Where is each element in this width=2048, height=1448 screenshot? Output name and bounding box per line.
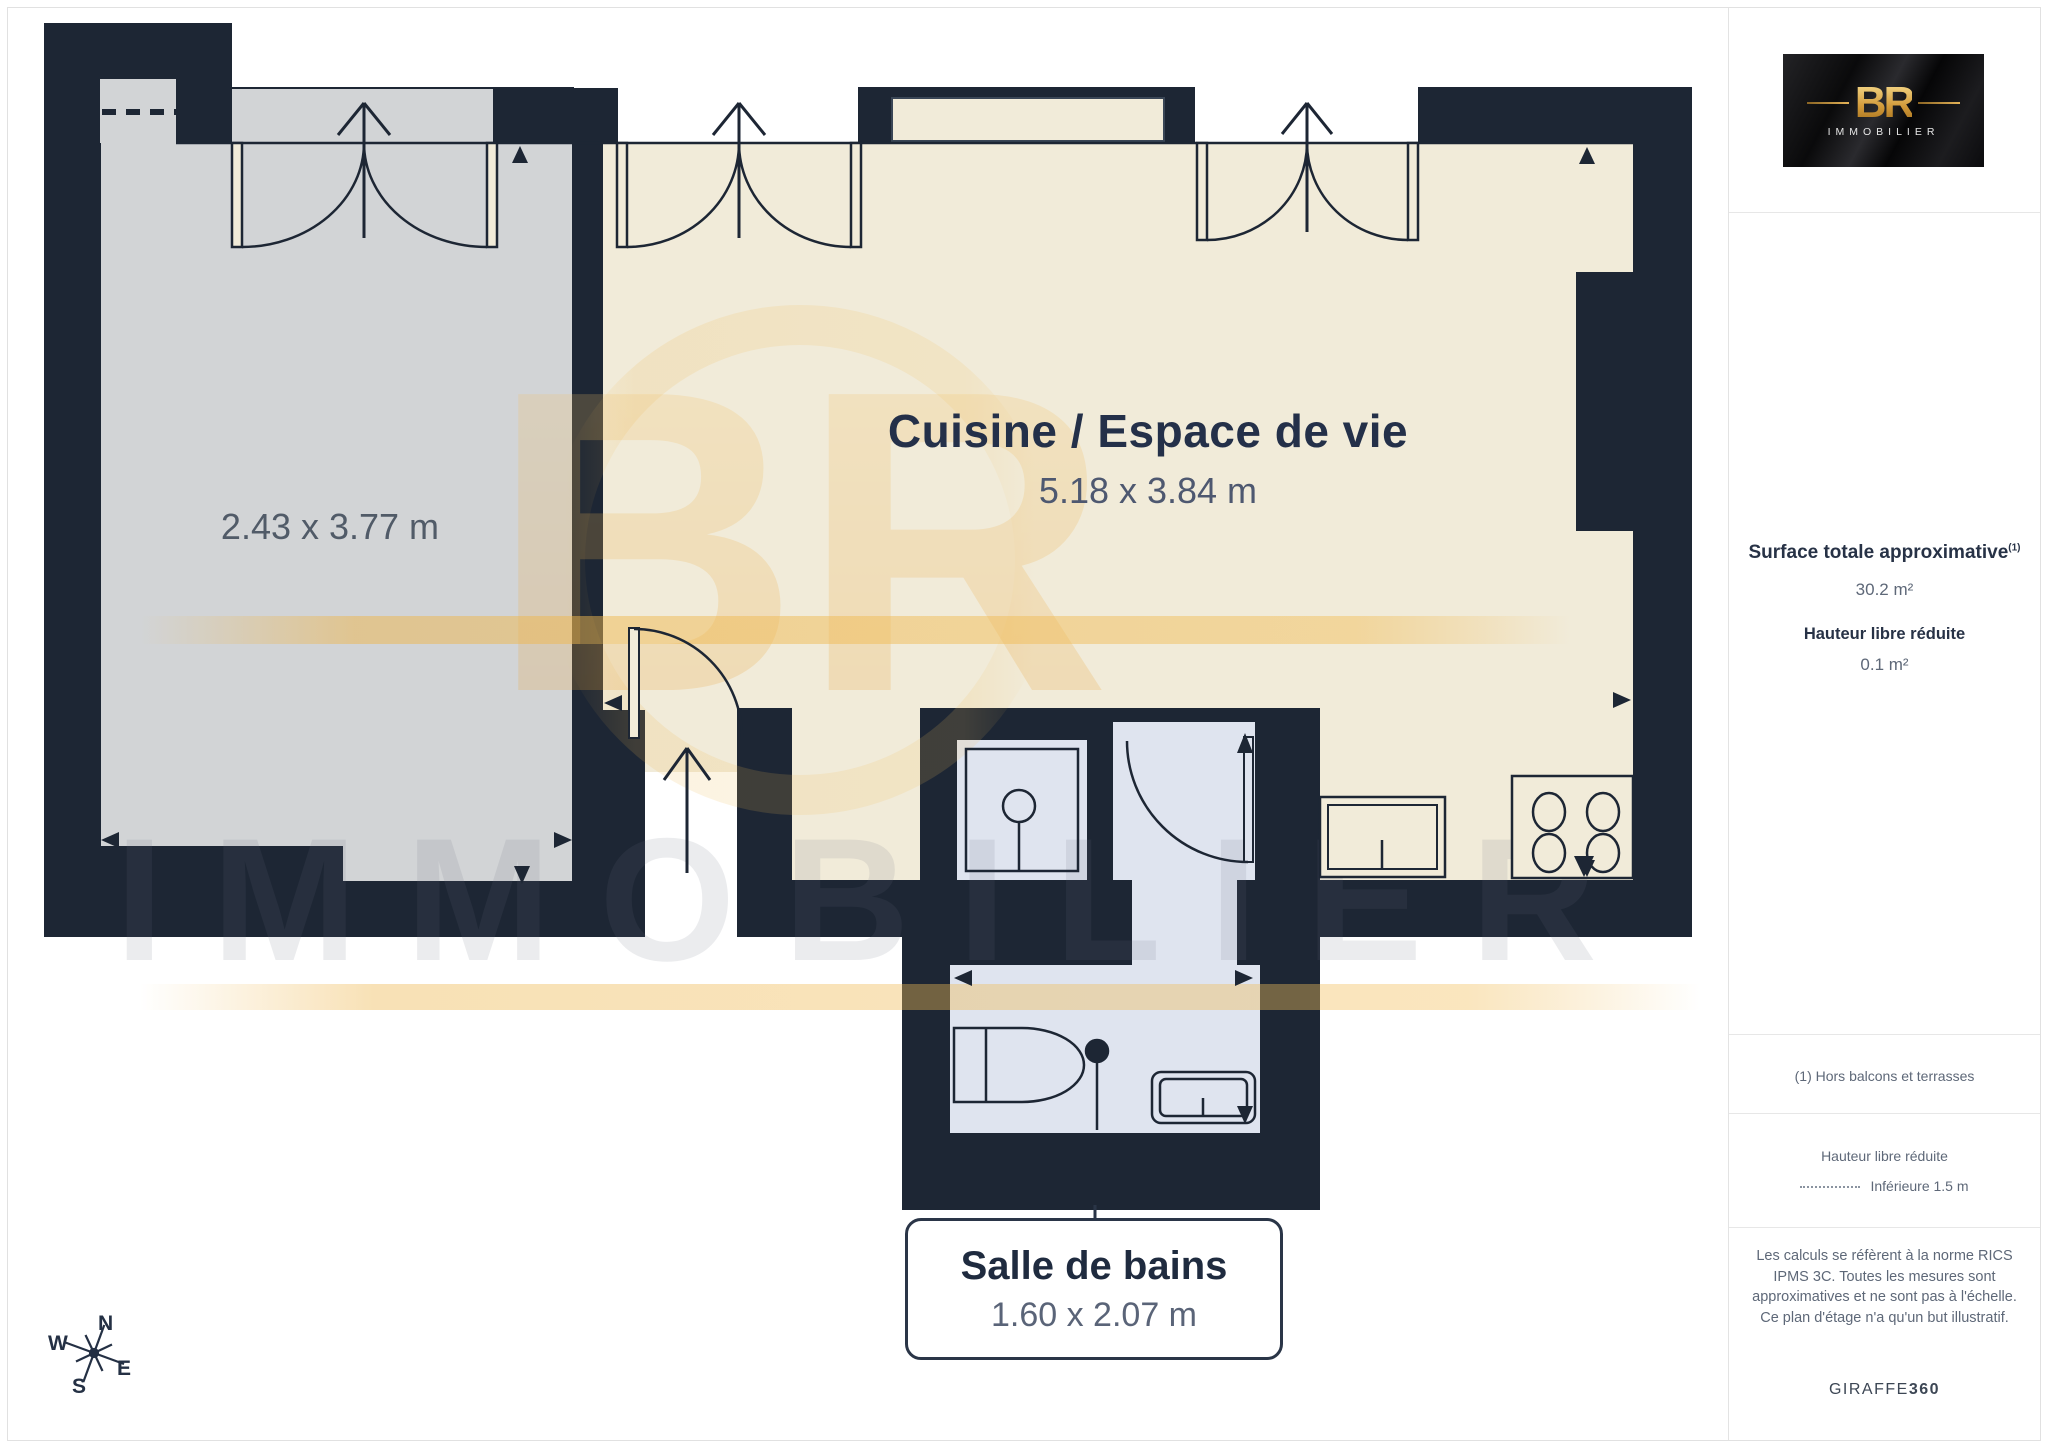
footnote-balconies: (1) Hors balcons et terrasses [1729, 1068, 2040, 1084]
compass-east-label: E [117, 1357, 131, 1381]
compass-west-label: W [48, 1332, 68, 1356]
living-room-dimensions: 5.18 x 3.84 m [748, 470, 1548, 512]
surface-footnote-ref: (1) [2008, 543, 2020, 554]
logo-monogram: BR [1855, 83, 1913, 123]
legend-value: Inférieure 1.5 m [1870, 1178, 1968, 1194]
compass-rose [64, 1325, 124, 1381]
logo-left-line [1807, 102, 1849, 104]
stove [1512, 776, 1633, 878]
legend-dotted-line [1800, 1186, 1860, 1188]
reduced-height-title: Hauteur libre réduite [1729, 625, 2040, 644]
legend-row: Inférieure 1.5 m [1729, 1178, 2040, 1194]
bathroom-dimensions: 1.60 x 2.07 m [991, 1296, 1197, 1335]
legend-title: Hauteur libre réduite [1729, 1148, 2040, 1164]
compass-south-label: S [72, 1375, 86, 1399]
compass-north-label: N [98, 1312, 113, 1336]
sidebar-divider-2 [1729, 1034, 2040, 1035]
reduced-height-zone [100, 79, 176, 143]
surface-total-title: Surface totale approximative(1) [1729, 542, 2040, 564]
logo-right-line [1918, 102, 1960, 104]
bathroom-callout: Salle de bains 1.60 x 2.07 m [905, 1218, 1283, 1360]
giraffe360-brand: GIRAFFE360 [1729, 1381, 2040, 1399]
giraffe360-regular: GIRAFFE [1829, 1381, 1909, 1398]
giraffe360-bold: 360 [1909, 1381, 1940, 1398]
reduced-height-value: 0.1 m² [1729, 655, 2040, 675]
agency-logo: BR IMMOBILIER [1783, 54, 1984, 167]
floorplan-page: { "plan": { "rooms": { "terrace": { "dim… [0, 0, 2048, 1448]
logo-brand-text: IMMOBILIER [1828, 126, 1940, 138]
sidebar-divider-4 [1729, 1227, 2040, 1228]
living-room-title: Cuisine / Espace de vie [748, 404, 1548, 458]
sidebar-divider-3 [1729, 1113, 2040, 1114]
sidebar-separator [1728, 8, 1729, 1440]
kitchen-cabinet [1320, 797, 1445, 877]
sidebar-divider-1 [1729, 212, 2040, 213]
surface-total-value: 30.2 m² [1729, 580, 2040, 600]
top-wall-window-recess [892, 98, 1164, 141]
disclaimer-text: Les calculs se réfèrent à la norme RICS … [1744, 1246, 2025, 1328]
svg-text:BR: BR [489, 302, 1110, 782]
bathroom-title: Salle de bains [961, 1244, 1228, 1288]
terrace-dimensions: 2.43 x 3.77 m [130, 506, 530, 548]
